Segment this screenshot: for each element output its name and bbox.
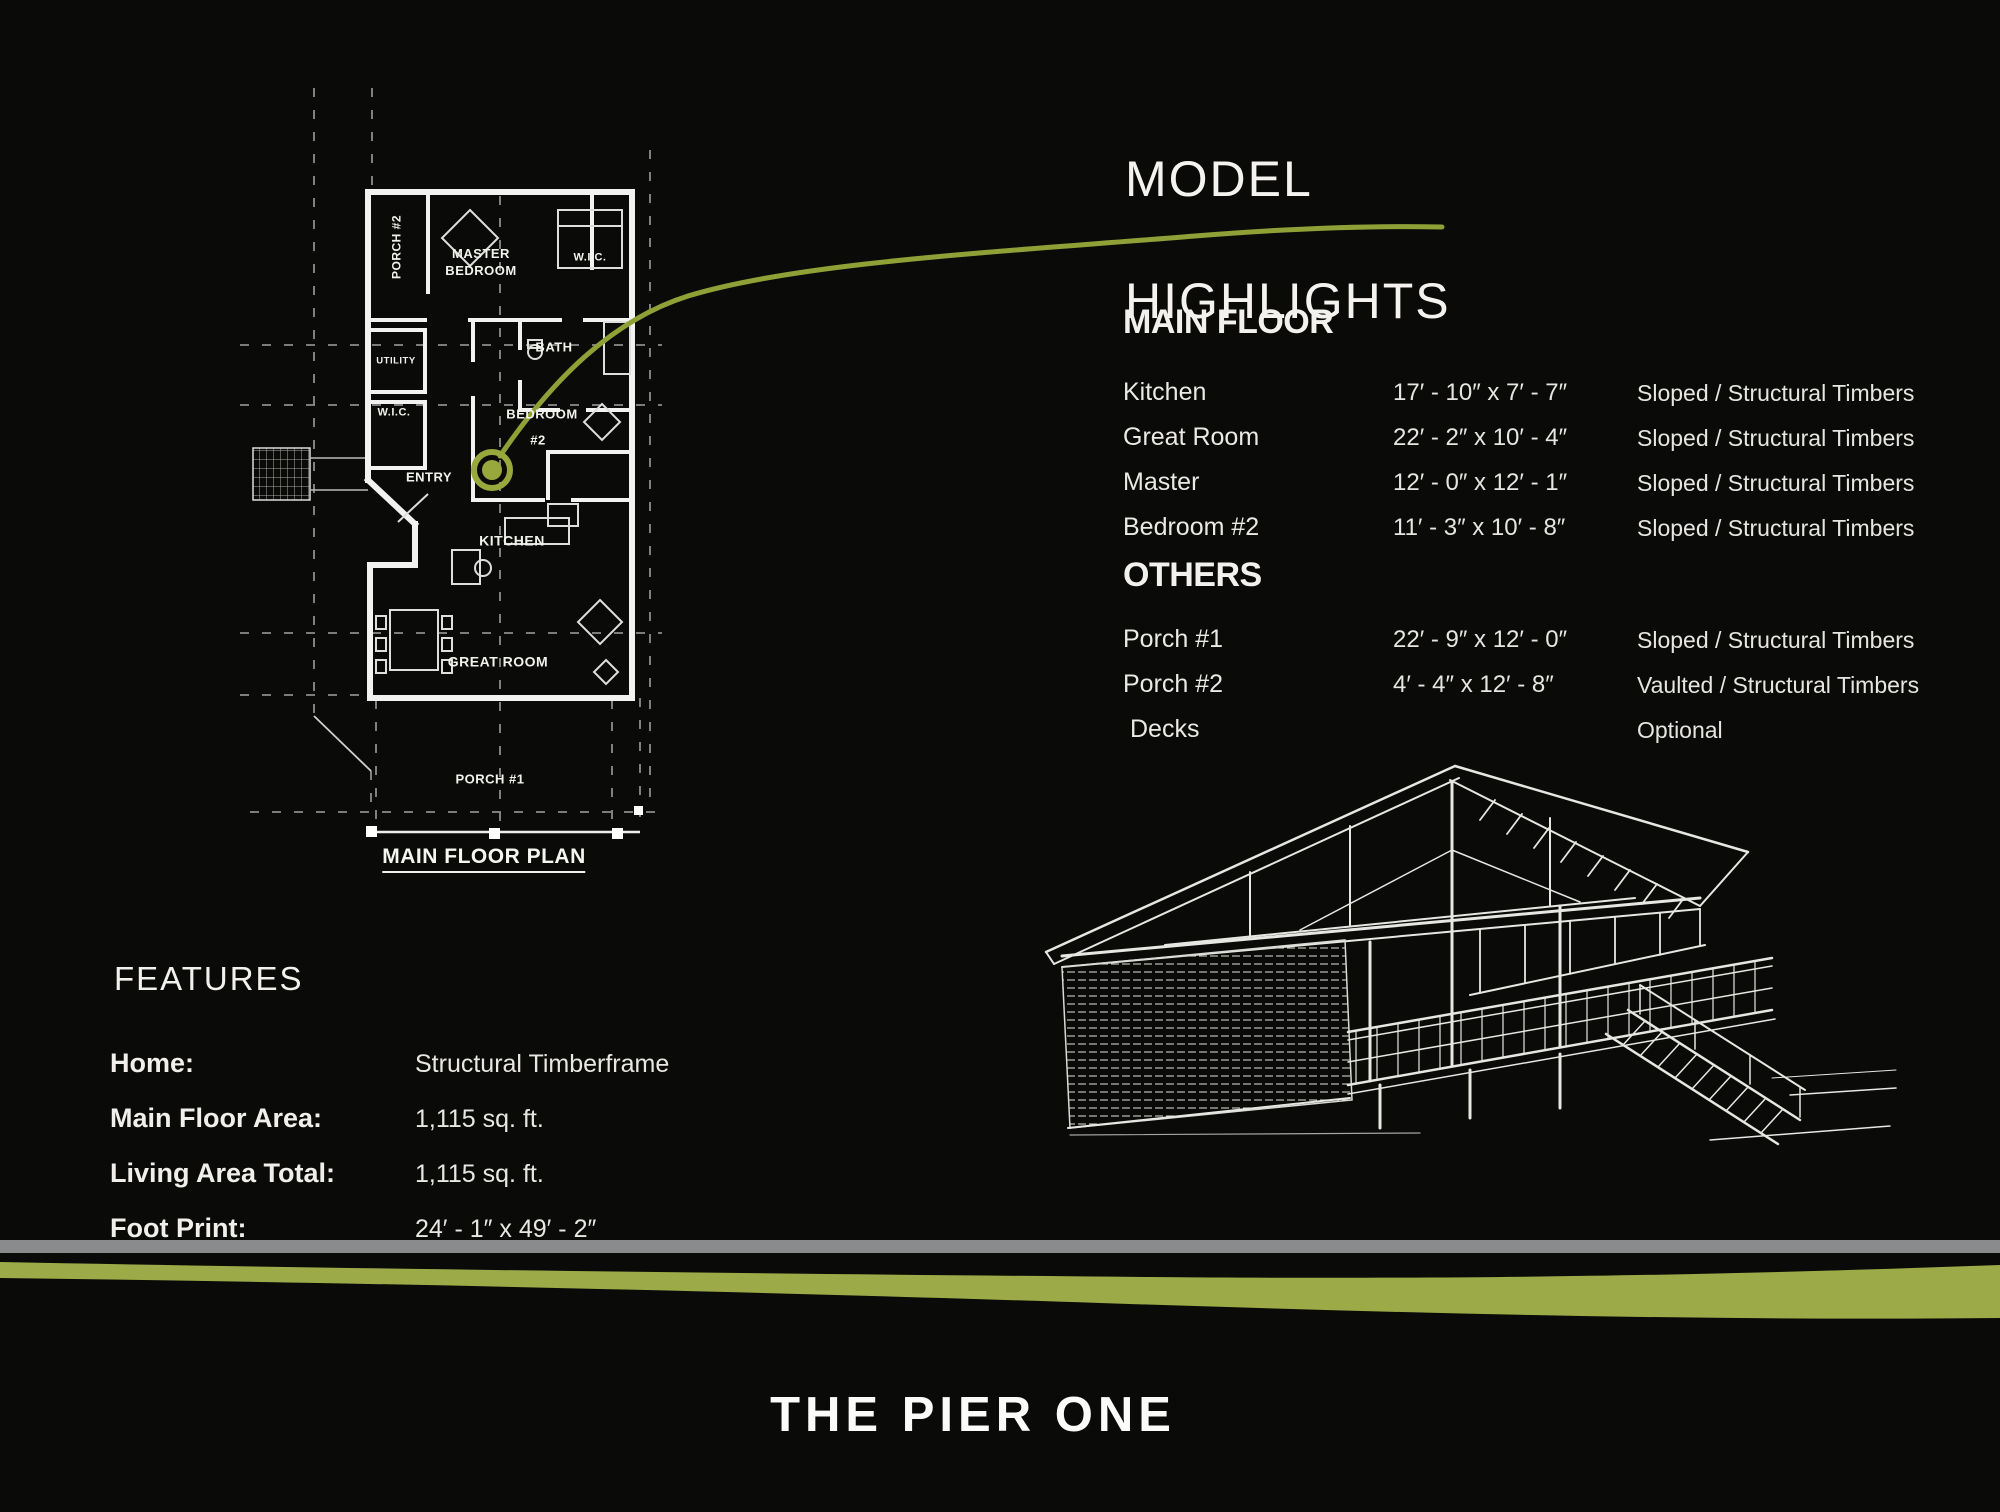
spec-room-name: Master — [1123, 468, 1199, 497]
spec-room-name: Bedroom #2 — [1123, 513, 1259, 542]
floor-plan-drawing — [240, 88, 662, 839]
plan-label-great-room: GREAT ROOM — [448, 654, 548, 671]
plan-label-master: MASTER BEDROOM — [445, 245, 516, 279]
spec-room-dims: 17′ - 10″ x 7′ - 7″ — [1393, 379, 1567, 407]
feature-value: 1,115 sq. ft. — [415, 1105, 544, 1134]
plan-label-wic-top: W.I.C. — [574, 250, 607, 267]
spec-room-name: Kitchen — [1123, 378, 1206, 407]
section-heading-main-floor: MAIN FLOOR — [1123, 303, 1333, 342]
plan-label-entry: ENTRY — [406, 469, 452, 486]
plan-label-porch2: PORCH #2 — [389, 215, 406, 279]
spec-room-ceiling: Sloped / Structural Timbers — [1637, 425, 1914, 452]
footer-gray-bar — [0, 1240, 2000, 1253]
plan-label-master-line2: BEDROOM — [445, 262, 516, 279]
spec-room-ceiling: Optional — [1637, 717, 1723, 744]
page-title: THE PIER ONE — [770, 1387, 1176, 1443]
feature-label: Living Area Total: — [110, 1158, 335, 1189]
feature-label: Foot Print: — [110, 1213, 246, 1244]
spec-room-ceiling: Sloped / Structural Timbers — [1637, 627, 1914, 654]
spec-room-name: Porch #2 — [1123, 670, 1223, 699]
spec-room-ceiling: Sloped / Structural Timbers — [1637, 470, 1914, 497]
features-heading: FEATURES — [114, 960, 304, 998]
plan-label-utility: UTILITY — [376, 353, 415, 370]
spec-room-name: Decks — [1130, 715, 1199, 744]
plan-label-bedroom2: BEDROOM — [506, 406, 577, 423]
feature-value: 1,115 sq. ft. — [415, 1160, 544, 1189]
spec-room-dims: 4′ - 4″ x 12′ - 8″ — [1393, 671, 1554, 699]
spec-room-dims: 12′ - 0″ x 12′ - 1″ — [1393, 469, 1567, 497]
spec-room-name: Great Room — [1123, 423, 1259, 452]
spec-room-ceiling: Sloped / Structural Timbers — [1637, 380, 1914, 407]
plan-label-bath: BATH — [535, 339, 572, 356]
plan-label-porch1: PORCH #1 — [455, 771, 524, 788]
plan-label-wic-left: W.I.C. — [378, 405, 411, 422]
page-artwork — [0, 0, 2000, 1512]
spec-room-ceiling: Vaulted / Structural Timbers — [1637, 672, 1919, 699]
brochure-page: PORCH #2 MASTER BEDROOM W.I.C. UTILITY B… — [0, 0, 2000, 1512]
spec-room-ceiling: Sloped / Structural Timbers — [1637, 515, 1914, 542]
feature-value: 24′ - 1″ x 49′ - 2″ — [415, 1215, 596, 1244]
feature-label: Main Floor Area: — [110, 1103, 322, 1134]
plan-label-kitchen: KITCHEN — [479, 533, 545, 550]
footer-green-swoosh — [0, 1262, 2000, 1319]
feature-value: Structural Timberframe — [415, 1050, 669, 1079]
spec-room-dims: 22′ - 2″ x 10′ - 4″ — [1393, 424, 1567, 452]
feature-label: Home: — [110, 1048, 194, 1079]
plan-label-master-line1: MASTER — [445, 245, 516, 262]
highlights-title-line1: MODEL — [1125, 150, 1313, 208]
spec-room-name: Porch #1 — [1123, 625, 1223, 654]
plan-caption: MAIN FLOOR PLAN — [382, 845, 585, 873]
plan-label-bedroom2-num: #2 — [530, 432, 545, 449]
house-illustration — [1046, 766, 1896, 1144]
location-marker-icon — [474, 452, 510, 488]
spec-room-dims: 22′ - 9″ x 12′ - 0″ — [1393, 626, 1567, 654]
spec-room-dims: 11′ - 3″ x 10′ - 8″ — [1393, 514, 1565, 542]
section-heading-others: OTHERS — [1123, 556, 1262, 595]
